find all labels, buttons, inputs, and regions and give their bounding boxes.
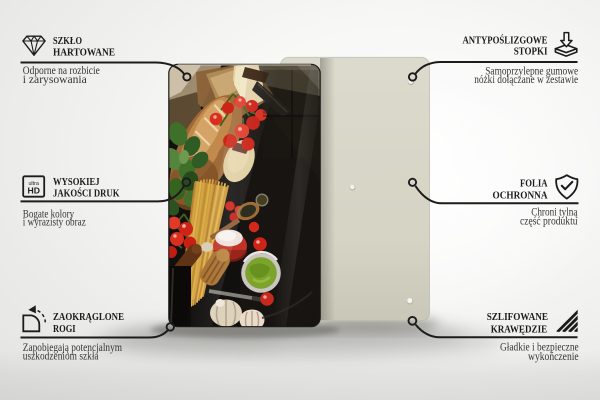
svg-text:wykończenie: wykończenie	[528, 351, 579, 363]
svg-text:SZKŁO: SZKŁO	[53, 35, 82, 47]
svg-text:OCHRONNA: OCHRONNA	[493, 189, 548, 201]
svg-text:HARTOWANE: HARTOWANE	[53, 46, 115, 58]
svg-text:ZAOKRĄGLONE: ZAOKRĄGLONE	[53, 311, 124, 323]
svg-text:część produktu: część produktu	[520, 216, 578, 228]
svg-text:JAKOŚCI DRUK: JAKOŚCI DRUK	[53, 187, 120, 199]
svg-text:ROGI: ROGI	[53, 323, 76, 335]
svg-text:uszkodzeniom szkła: uszkodzeniom szkła	[23, 350, 99, 362]
svg-text:nóżki dołączane w zestawie: nóżki dołączane w zestawie	[474, 74, 578, 86]
svg-text:i zarysowania: i zarysowania	[23, 74, 87, 86]
svg-text:ANTYPOŚLIZGOWE: ANTYPOŚLIZGOWE	[463, 34, 548, 46]
svg-text:HD: HD	[27, 186, 39, 196]
svg-text:KRAWĘDZIE: KRAWĘDZIE	[491, 323, 548, 335]
svg-text:SZLIFOWANE: SZLIFOWANE	[487, 311, 548, 323]
svg-text:STOPKI: STOPKI	[514, 46, 548, 58]
svg-text:FOLIA: FOLIA	[520, 177, 548, 189]
svg-text:i wyrazisty obraz: i wyrazisty obraz	[23, 216, 86, 228]
svg-text:WYSOKIEJ: WYSOKIEJ	[53, 176, 100, 188]
